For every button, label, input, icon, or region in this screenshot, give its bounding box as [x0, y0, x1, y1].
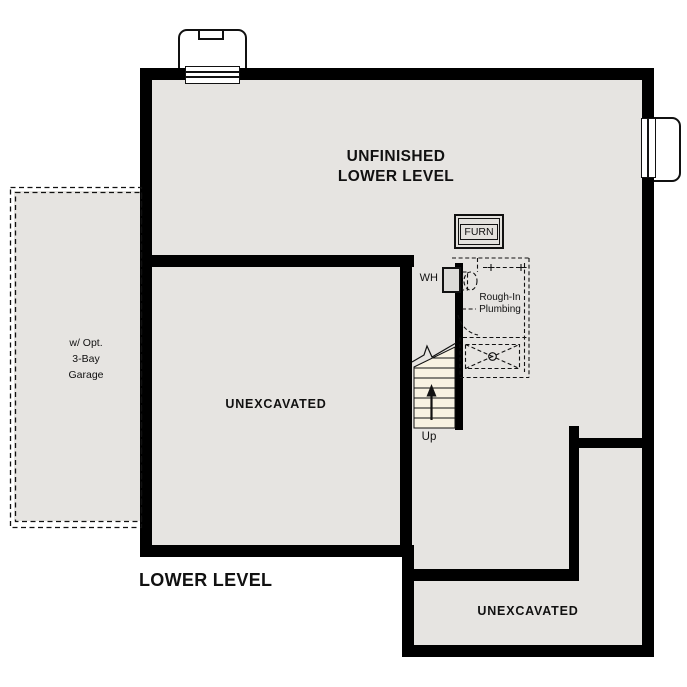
room-label-unexcavated-bottom-right: UNEXCAVATED [428, 604, 628, 618]
rough-in-label-line: Plumbing [462, 304, 538, 316]
plan-title: LOWER LEVEL [139, 570, 272, 591]
window-mullion [186, 76, 239, 78]
water-heater-box [442, 267, 461, 293]
floor-plan: FURN WH UNFINISHED LOWER LEVEL UNEXCAVAT… [0, 0, 687, 687]
room-label-line: LOWER LEVEL [296, 167, 496, 187]
wall-exterior-lower-left [402, 545, 414, 657]
room-label-line: UNFINISHED [296, 147, 496, 167]
wall-exterior-bottom-left-section [140, 545, 414, 557]
window-well-top-step [198, 31, 224, 40]
window-mullion [186, 71, 239, 73]
wall-exterior-bottom [402, 645, 654, 657]
window-mullion [647, 119, 649, 177]
garage-option-line: w/ Opt. [26, 335, 146, 351]
wall-interior-unexcavated-bottom-top [402, 569, 579, 581]
wall-interior-bottom-right-horizontal [579, 438, 642, 448]
window-right [641, 118, 656, 178]
room-label-unexcavated-left: UNEXCAVATED [176, 397, 376, 411]
garage-option-label: w/ Opt. 3-Bay Garage [26, 335, 146, 383]
rough-in-label-line: Rough-In [462, 292, 538, 304]
wall-interior-unexcavated-right [400, 255, 412, 557]
water-heater-label: WH [400, 272, 438, 284]
wall-interior-unexcavated-top [140, 255, 414, 267]
rough-in-plumbing-label: Rough-In Plumbing [462, 292, 538, 315]
room-label-unfinished-lower-level: UNFINISHED LOWER LEVEL [296, 147, 496, 187]
stairs-up-label: Up [409, 431, 449, 443]
garage-option-line: Garage [26, 367, 146, 383]
garage-option-line: 3-Bay [26, 351, 146, 367]
furnace-box: FURN [454, 214, 504, 249]
furnace-inner-outline: FURN [458, 218, 500, 245]
wall-exterior-left [140, 68, 152, 557]
wall-interior-bottom-right-vertical [569, 426, 579, 581]
furnace-label: FURN [460, 224, 497, 240]
window-top [185, 66, 240, 84]
